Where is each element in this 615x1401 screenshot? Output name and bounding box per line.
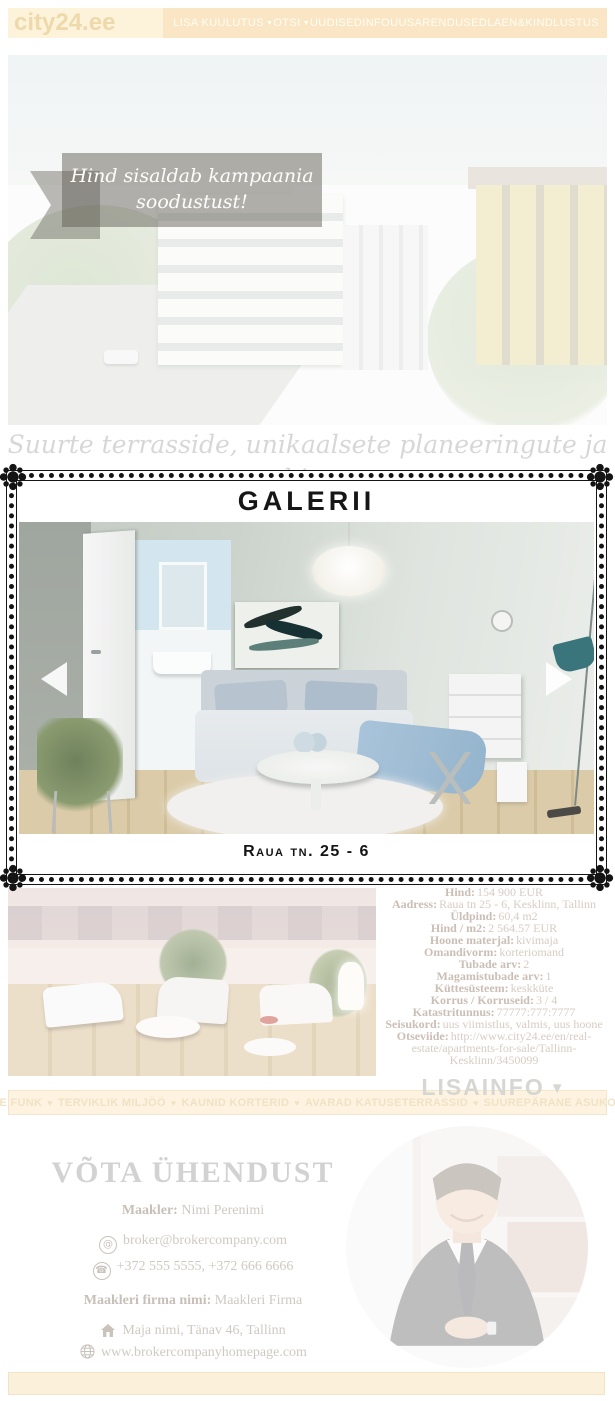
email-line: @broker@brokercompany.com (8, 1232, 378, 1254)
frame-corner-ornament (0, 863, 28, 893)
wall-clock (491, 610, 513, 632)
frame-corner-ornament (585, 863, 615, 893)
website-link[interactable]: www.brokercompanyhomepage.com (101, 1345, 307, 1360)
terrace-lamp (338, 962, 364, 1010)
hero-image: Hind sisaldab kampaania soodustust! (8, 55, 607, 425)
ribbon-band: Hind sisaldab kampaania soodustust! (62, 153, 322, 227)
floor-lamp-pole (574, 556, 594, 805)
coffee-table-base (311, 780, 321, 810)
menu-item-uudised[interactable]: UUDISED (310, 17, 362, 29)
contact-lines: Maakler: Nimi Perenimi @broker@brokercom… (8, 1198, 378, 1362)
contact-title: VÕTA ÜHENDUST (8, 1156, 378, 1190)
property-details: Kinnisvara liik:korter Hind:154 900 EUR … (378, 874, 610, 1102)
footer-bar (8, 1372, 605, 1395)
gallery-title: GALERII (238, 486, 376, 517)
campaign-ribbon: Hind sisaldab kampaania soodustust! (30, 153, 322, 227)
menu-label: LISA KUULUTUS (173, 17, 264, 29)
wall-art (235, 602, 339, 668)
feature-item: KAUNID KORTERID (181, 1097, 289, 1109)
address-line: Maja nimi, Tänav 46, Tallinn (8, 1322, 378, 1340)
phone-icon: ☎ (93, 1262, 111, 1280)
gallery-next-button[interactable] (546, 662, 572, 696)
terrace-bowl (260, 1016, 278, 1024)
website-line: www.brokercompanyhomepage.com (8, 1344, 378, 1362)
plant-stand (52, 791, 113, 833)
heart-icon: ♥ (171, 1098, 177, 1108)
frame-corner-ornament (585, 462, 615, 492)
menu-item-laen-kindlustus[interactable]: LAEN&KINDLUSTUS (487, 17, 599, 29)
phone-numbers[interactable]: +372 555 5555, +372 666 6666 (117, 1259, 294, 1274)
door-handle (91, 650, 101, 654)
heart-icon: ♥ (47, 1098, 53, 1108)
top-navbar: city24.ee LISA KUULUTUS▼ OTSI▼ UUDISED I… (8, 8, 607, 38)
menu-label: UUSARENDUSED (390, 17, 487, 29)
menu-label: OTSI (273, 17, 300, 29)
menu-label: INFO (362, 17, 390, 29)
site-logo[interactable]: city24.ee (8, 8, 163, 38)
table-glassware (291, 728, 335, 752)
broker-name-line: Maakler: Nimi Perenimi (8, 1202, 378, 1220)
hero-building-wing (343, 225, 428, 370)
coffee-table (257, 750, 379, 784)
folding-stool (417, 752, 483, 804)
gallery-content: GALERII (18, 482, 595, 873)
detail-row-link: Otseviide:http://www.city24.ee/en/real-e… (378, 1030, 610, 1066)
contact-section: VÕTA ÜHENDUST Maakler: Nimi Perenimi @br… (8, 1118, 607, 1368)
lounge-chair (42, 980, 124, 1028)
hero-neighbor-house (476, 185, 607, 365)
email-icon: @ (99, 1236, 117, 1254)
menu-item-lisa-kuulutus[interactable]: LISA KUULUTUS▼ (173, 17, 273, 29)
phone-line: ☎+372 555 5555, +372 666 6666 (8, 1258, 378, 1280)
menu-item-uusarendused[interactable]: UUSARENDUSED (390, 17, 487, 29)
lisainfo-button[interactable]: LISAINFO▼ (378, 1074, 610, 1102)
hero-car (104, 350, 138, 364)
email-link[interactable]: broker@brokercompany.com (123, 1233, 287, 1248)
pendant-lamp (312, 546, 386, 596)
storage-boxes (497, 762, 527, 802)
gallery-prev-button[interactable] (41, 662, 67, 696)
house-icon (100, 1324, 116, 1338)
chevron-down-icon: ▼ (303, 20, 310, 27)
gallery-frame: GALERII (6, 470, 607, 885)
feature-item: TERVIKLIK MILJÖÖ (58, 1097, 166, 1109)
frame-corner-ornament (0, 462, 28, 492)
gallery-caption: Raua tn. 25 - 6 (243, 843, 370, 861)
chevron-down-icon: ▼ (266, 20, 273, 27)
menu-label: UUDISED (310, 17, 362, 29)
terrace-photo (8, 888, 376, 1076)
menu-label: LAEN&KINDLUSTUS (487, 17, 599, 29)
campaign-text: Hind sisaldab kampaania soodustust! (62, 164, 322, 215)
company-line: Maakleri firma nimi: Maakleri Firma (8, 1292, 378, 1310)
heart-icon: ♥ (294, 1098, 300, 1108)
main-menu: LISA KUULUTUS▼ OTSI▼ UUDISED INFO UUSARE… (163, 17, 607, 29)
menu-item-info[interactable]: INFO (362, 17, 390, 29)
bathroom-mirror (159, 562, 207, 630)
gallery-photo[interactable] (19, 522, 594, 834)
menu-item-otsi[interactable]: OTSI▼ (273, 17, 310, 29)
broker-photo (346, 1126, 588, 1368)
terrace-table (244, 1038, 296, 1056)
broker-portrait (346, 1126, 588, 1368)
chevron-down-icon: ▼ (550, 1080, 567, 1097)
globe-icon (79, 1344, 95, 1358)
feature-item: EHE FUNK (0, 1097, 42, 1109)
terrace-table (136, 1016, 200, 1038)
hero-aerial-photo (8, 55, 607, 425)
